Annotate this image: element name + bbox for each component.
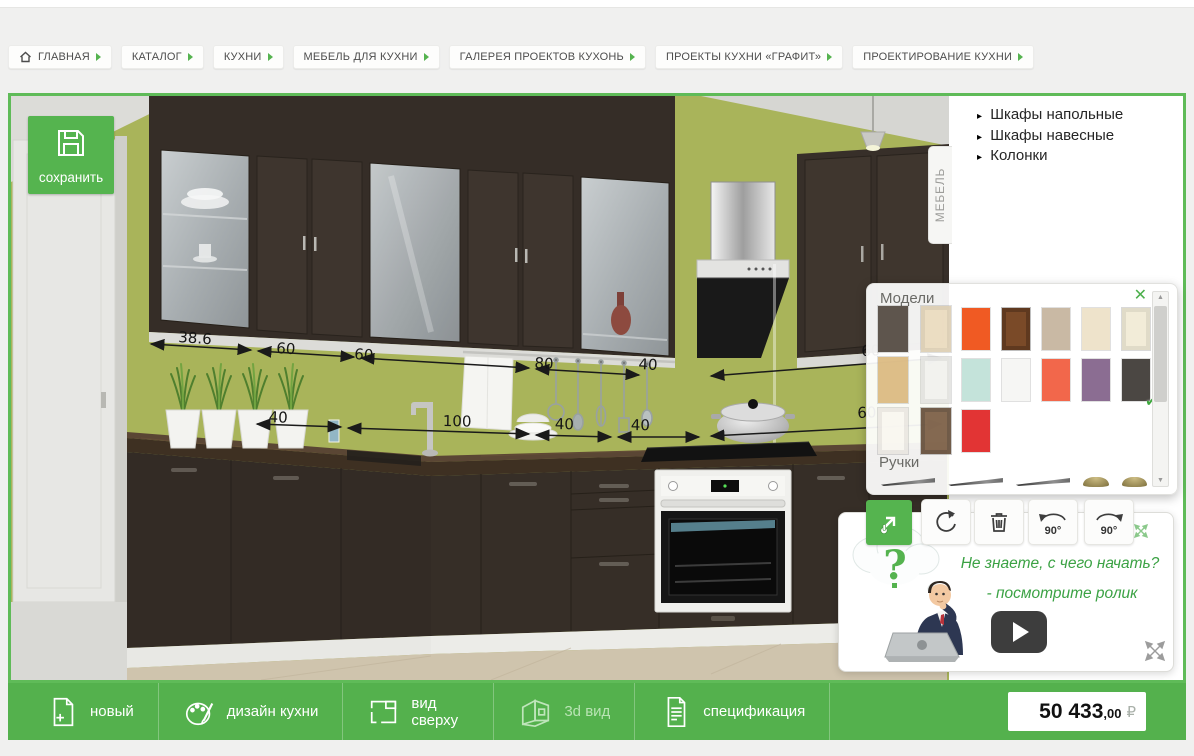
rotate-90-cw-button[interactable]: 90° [1084,499,1134,545]
breadcrumb-label: МЕБЕЛЬ ДЛЯ КУХНИ [304,51,418,63]
model-thumbnail[interactable] [878,306,908,352]
breadcrumb-item[interactable]: КУХНИ [213,45,284,69]
tab-furniture-label: МЕБЕЛЬ [934,168,948,222]
room-door [11,136,127,680]
kitchen-design-button[interactable]: дизайн кухни [159,683,344,740]
rotate-icon [933,509,959,535]
floor-plan-icon [367,695,401,729]
breadcrumb-item[interactable]: ПРОЕКТЫ КУХНИ «ГРАФИТ» [655,45,843,69]
3d-view-button[interactable]: 3d вид [494,683,635,740]
breadcrumb-label: ГЛАВНАЯ [38,51,90,63]
models-panel-title: Модели [880,290,934,307]
catalog-menu-label: Шкафы навесные [990,127,1114,144]
trash-icon [987,510,1011,534]
help-text-line1: Не знаете, с чего начать? [957,555,1163,573]
palette-icon [183,695,217,729]
color-swatch[interactable] [962,308,990,350]
price-fraction: ,00 [1103,706,1121,721]
chevron-right-icon [96,53,101,61]
handle-option[interactable] [1083,477,1108,487]
kitchen-3d-viewport[interactable]: 38.6 60 60 80 40 60 40 100 40 [11,96,949,680]
color-swatch[interactable] [1002,308,1030,350]
color-swatch[interactable]: ✔ [1122,359,1150,401]
kitchen-design-label: дизайн кухни [227,703,319,720]
svg-text:?: ? [883,542,906,589]
kitchen-scene [11,96,949,680]
model-thumbnail[interactable] [921,357,951,403]
specification-document-icon [659,695,693,729]
catalog-menu-item[interactable]: ▸ Шкафы навесные [977,127,1183,148]
top-view-label: вид сверху [411,695,469,729]
save-button-label: сохранить [39,170,103,185]
color-swatch[interactable] [1042,359,1070,401]
assistant-man [885,581,963,662]
chevron-right-icon: ▸ [977,132,982,143]
handle-option[interactable] [1122,477,1147,487]
panel-move-icon[interactable] [1133,523,1149,544]
handle-option[interactable] [1016,478,1070,486]
model-thumbnail[interactable] [878,357,908,403]
3d-room-icon [518,695,554,729]
price-currency: ₽ [1126,703,1136,721]
chevron-right-icon [1018,53,1023,61]
3d-view-label: 3d вид [564,703,610,720]
new-document-icon [46,695,80,729]
breadcrumb-item[interactable]: КАТАЛОГ [121,45,204,69]
models-panel: Модели ✕ [866,283,1178,495]
chevron-right-icon [630,53,635,61]
play-video-button[interactable] [991,611,1047,653]
delete-object-button[interactable] [974,499,1024,545]
planner-canvas: 38.6 60 60 80 40 60 40 100 40 [8,93,1186,683]
catalog-menu: ▸ Шкафы напольные ▸ Шкафы навесные ▸ Кол… [977,106,1183,168]
top-view-button[interactable]: вид сверху [343,683,494,740]
chevron-right-icon [268,53,273,61]
color-swatch[interactable] [962,410,990,452]
chevron-right-icon: ▸ [977,111,982,122]
breadcrumb: ГЛАВНАЯ КАТАЛОГ КУХНИ МЕБЕЛЬ ДЛЯ КУХНИ [8,45,1034,69]
base-cabinets [127,452,947,668]
chevron-right-icon [827,53,832,61]
close-icon[interactable]: ✕ [1134,288,1147,304]
total-price: 50 433 ,00 ₽ [1008,692,1146,731]
model-thumbnails [878,306,951,454]
breadcrumb-item[interactable]: МЕБЕЛЬ ДЛЯ КУХНИ [293,45,440,69]
catalog-menu-item[interactable]: ▸ Колонки [977,147,1183,168]
rotate-ccw-arc-icon [1037,507,1069,525]
price-amount: 50 433 [1039,700,1103,724]
breadcrumb-label: КУХНИ [224,51,262,63]
scrollbar-thumb[interactable] [1154,306,1167,402]
color-swatch[interactable] [1082,359,1110,401]
handle-option[interactable] [948,478,1002,486]
breadcrumb-item[interactable]: ГЛАВНАЯ [8,45,112,69]
rotate-cw-label: 90° [1093,525,1125,537]
handle-options [881,474,1147,490]
specification-button[interactable]: спецификация [635,683,830,740]
new-project-label: новый [90,703,134,720]
wall-cabinets-left [149,96,675,368]
catalog-menu-item[interactable]: ▸ Шкафы напольные [977,106,1183,127]
chevron-right-icon [188,53,193,61]
color-swatch[interactable] [962,359,990,401]
home-icon [19,51,32,63]
chevron-right-icon [424,53,429,61]
help-text-line2: - посмотрите ролик [977,585,1147,603]
rotate-90-ccw-button[interactable]: 90° [1028,499,1078,545]
rotate-object-button[interactable] [921,499,971,545]
catalog-menu-label: Колонки [990,147,1047,164]
kitchen-planner-app: ГЛАВНАЯ КАТАЛОГ КУХНИ МЕБЕЛЬ ДЛЯ КУХНИ [0,0,1194,756]
color-swatch[interactable] [1122,308,1150,350]
new-project-button[interactable]: новый [8,683,159,740]
model-thumbnail[interactable] [921,306,951,352]
handle-option[interactable] [881,478,935,486]
breadcrumb-label: ПРОЕКТЫ КУХНИ «ГРАФИТ» [666,51,821,63]
color-swatch[interactable] [1042,308,1070,350]
breadcrumb-label: ГАЛЕРЕЯ ПРОЕКТОВ КУХОНЬ [460,51,624,63]
floppy-icon [54,126,88,165]
color-swatch[interactable] [1002,359,1030,401]
breadcrumb-label: ПРОЕКТИРОВАНИЕ КУХНИ [863,51,1012,63]
handles-section-title: Ручки [879,454,919,471]
oven [655,470,791,621]
fullscreen-icon[interactable] [1143,639,1167,668]
move-object-button[interactable] [866,500,912,545]
chevron-right-icon: ▸ [977,152,982,163]
model-thumbnail[interactable] [878,408,908,454]
model-thumbnail[interactable] [921,408,951,454]
scroll-down-icon[interactable]: ▼ [1153,477,1168,484]
color-swatches: ✔ [962,308,1150,452]
breadcrumb-item[interactable]: ПРОЕКТИРОВАНИЕ КУХНИ [852,45,1034,69]
breadcrumb-item[interactable]: ГАЛЕРЕЯ ПРОЕКТОВ КУХОНЬ [449,45,646,69]
play-icon [1013,622,1029,642]
bottom-toolbar: новый дизайн кухни вид сверху 3d вид [8,683,1186,740]
top-strip [0,0,1194,8]
rotate-ccw-label: 90° [1037,525,1069,537]
specification-label: спецификация [703,703,805,720]
scroll-up-icon[interactable]: ▲ [1153,294,1168,301]
color-swatch[interactable] [1082,308,1110,350]
scrollbar: ▲ ▼ [1152,291,1169,487]
save-button[interactable]: сохранить [28,116,114,194]
rotate-cw-arc-icon [1093,507,1125,525]
catalog-menu-label: Шкафы напольные [990,106,1123,123]
breadcrumb-label: КАТАЛОГ [132,51,182,63]
tab-furniture[interactable]: МЕБЕЛЬ [928,146,952,244]
